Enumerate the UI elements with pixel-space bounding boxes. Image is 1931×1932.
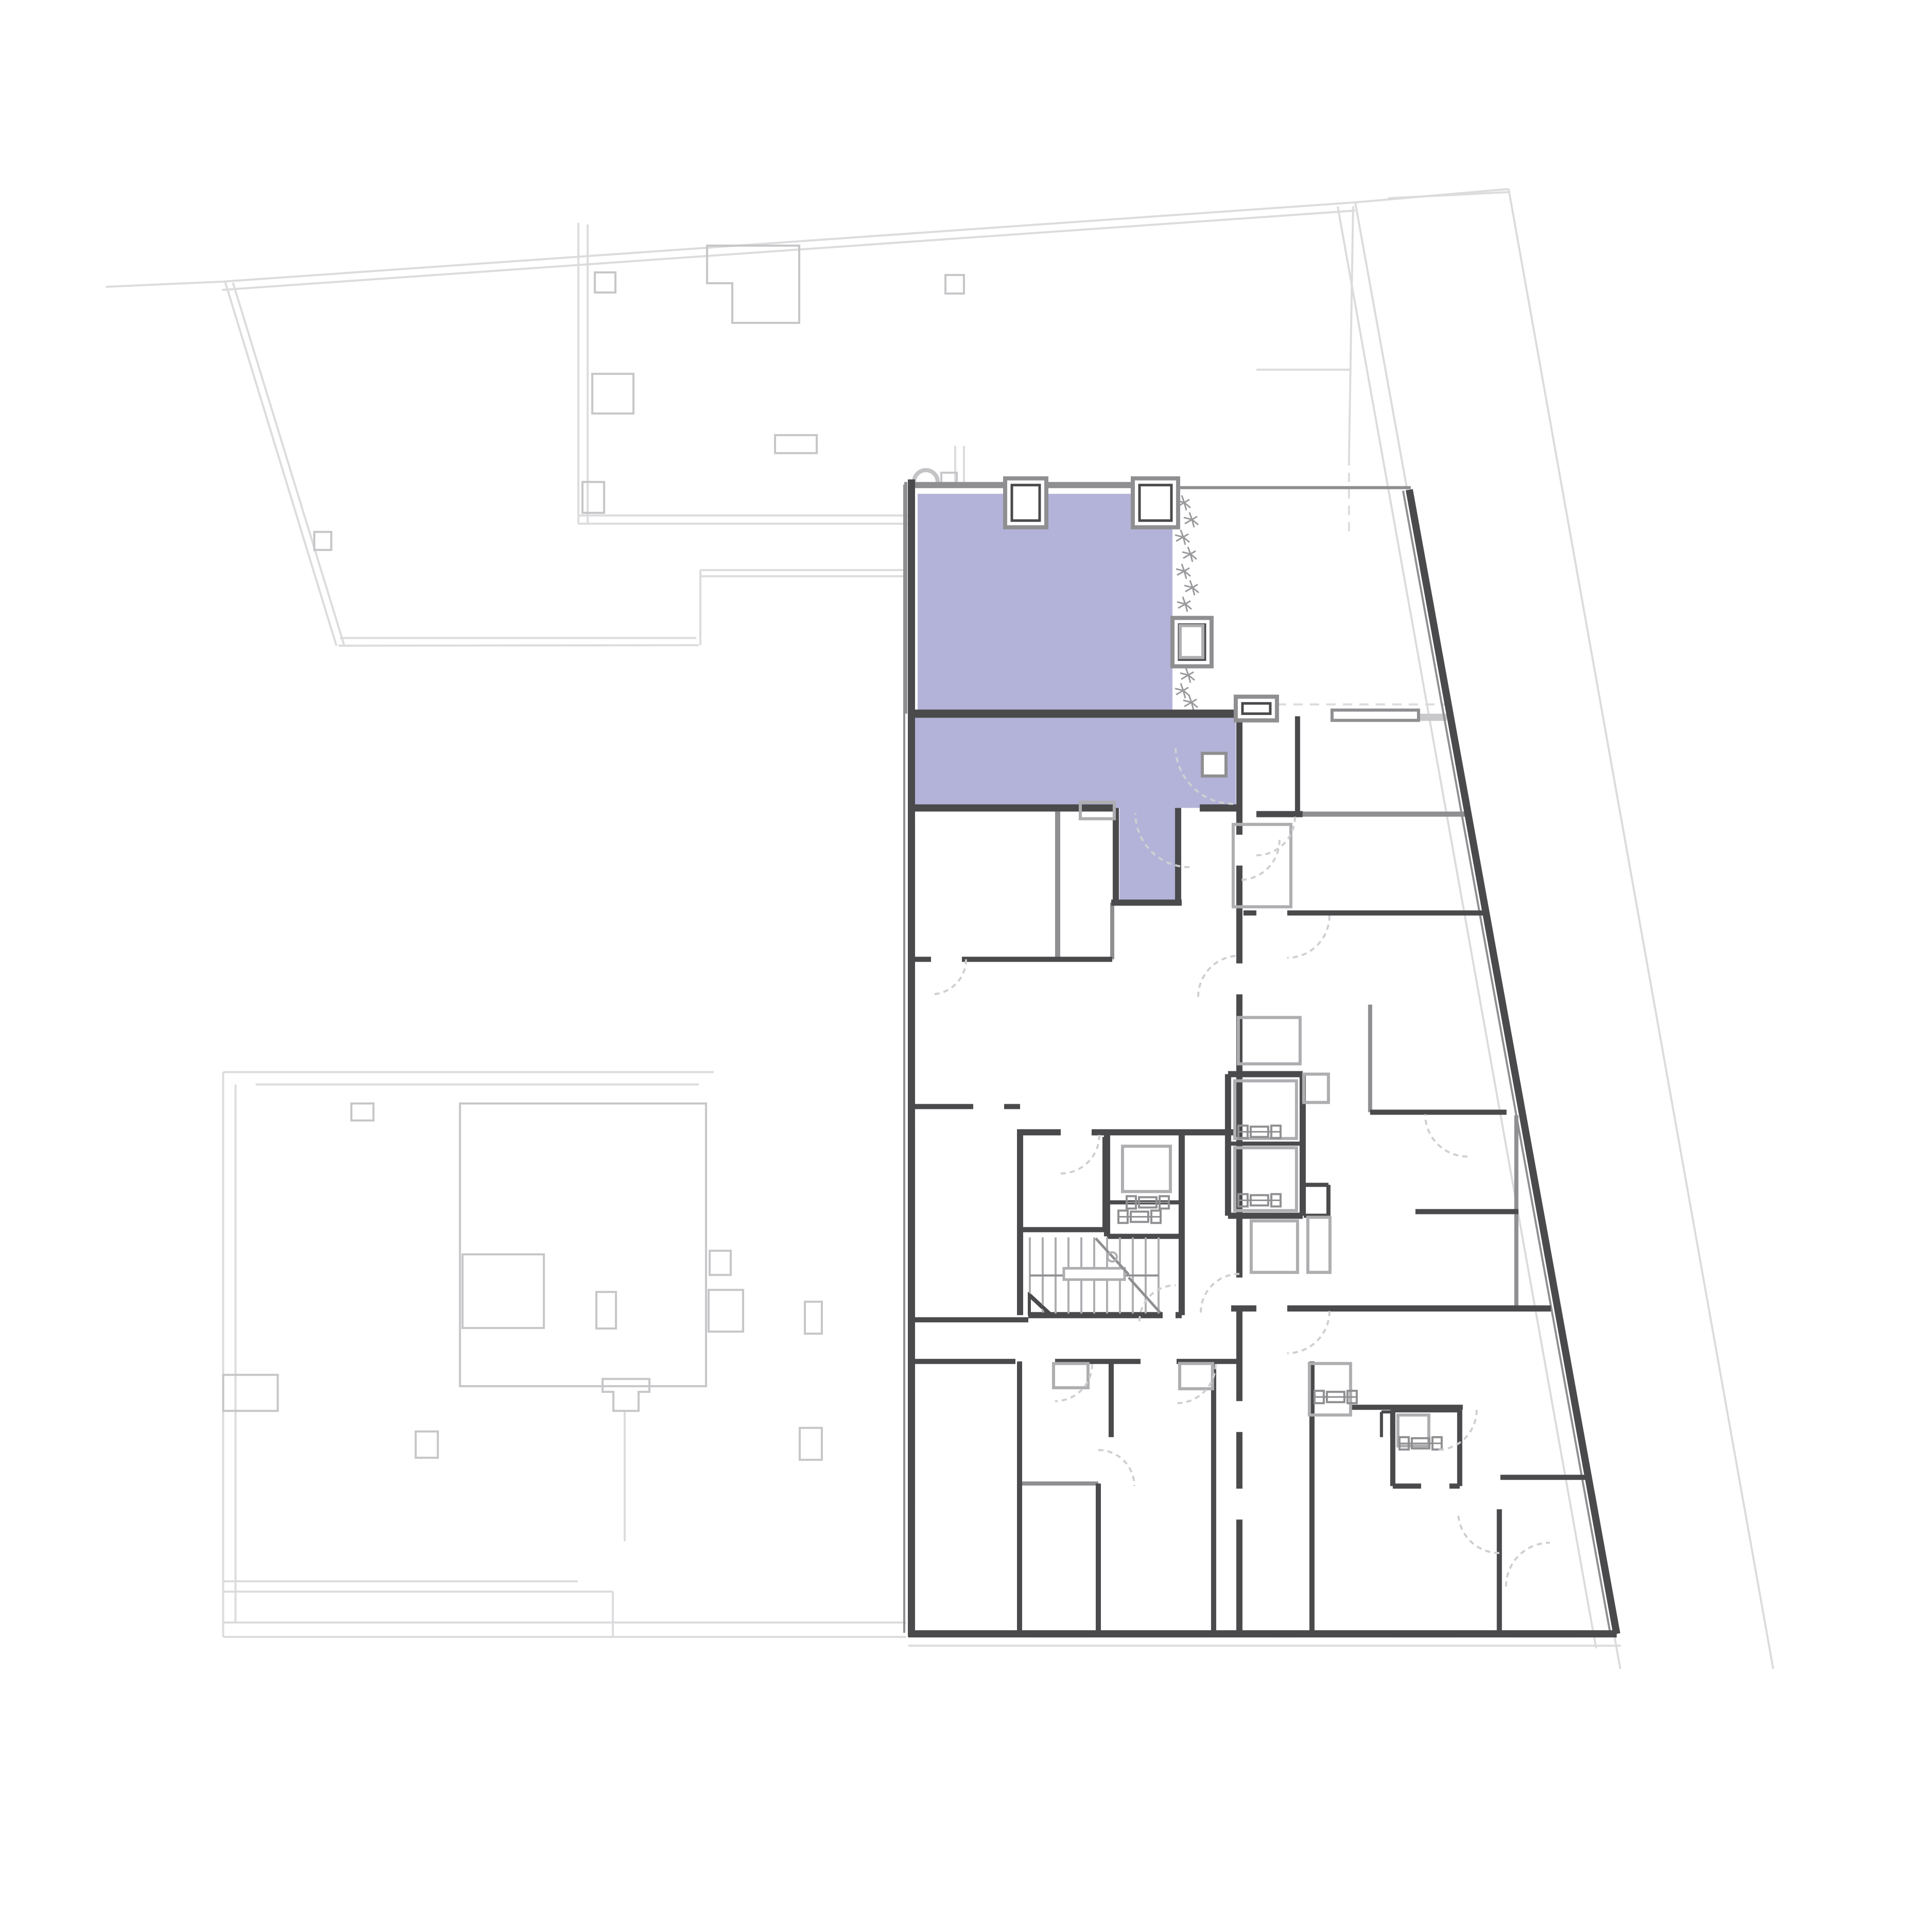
roof-detail-rect	[223, 1375, 278, 1411]
roof-detail-rect	[592, 373, 633, 413]
site-boundary-line	[225, 282, 336, 645]
fixture-outline	[1304, 1074, 1329, 1102]
plant-stroke	[1181, 675, 1188, 679]
stair-rail	[1064, 1268, 1125, 1279]
site-boundary-line	[106, 281, 222, 286]
roof-detail-rect	[805, 1302, 822, 1333]
plant-tuft	[1182, 546, 1197, 561]
plant-stroke	[1185, 601, 1191, 604]
site-boundary-line	[233, 282, 344, 645]
door-swing-arc	[1458, 1512, 1499, 1553]
site-boundary-line	[222, 202, 1355, 281]
partition-wall	[1403, 490, 1611, 1634]
plant-stroke	[1184, 499, 1189, 502]
plant-stroke	[1185, 587, 1193, 591]
door-swing-arc	[1287, 1311, 1330, 1353]
appliance-glyph	[1238, 1125, 1281, 1138]
skylight-inner	[1140, 485, 1171, 520]
skylight-inner	[1012, 485, 1040, 520]
roof-detail-rect	[416, 1431, 438, 1458]
roof-detail-rect	[460, 1103, 706, 1386]
plant-stroke	[1177, 571, 1184, 575]
roof-detail-outline	[602, 1379, 649, 1411]
site-boundary-line	[1509, 189, 1773, 1668]
stair-corner	[1029, 1295, 1050, 1314]
door-swing-arc	[1198, 955, 1239, 997]
appliance-glyph	[1127, 1196, 1169, 1208]
page-background	[0, 0, 1931, 1932]
fixture-outline	[1235, 1148, 1297, 1210]
plant-stroke	[1188, 672, 1194, 675]
door-swing-arc	[1287, 915, 1330, 958]
plant-stroke	[1184, 702, 1192, 706]
plant-stroke	[1183, 534, 1188, 537]
plant-stroke	[1176, 690, 1183, 694]
plant-tuft	[1176, 563, 1191, 578]
appliance-glyph	[1118, 1210, 1161, 1223]
skylight-inner	[1243, 703, 1270, 713]
roof-detail-rect	[462, 1254, 544, 1328]
structural-wall	[1409, 489, 1617, 1633]
door-swing-arc	[1239, 840, 1280, 880]
skylight-outer	[1332, 710, 1419, 720]
neighbor-roof-details	[223, 245, 964, 1459]
roof-detail-rect	[709, 1290, 743, 1331]
roof-detail-rect	[775, 435, 817, 453]
roof-detail-rect	[710, 1251, 731, 1275]
site-boundary-line	[1388, 192, 1509, 198]
skylight-outer	[1202, 753, 1226, 776]
site-boundary-line	[222, 210, 1355, 289]
fixture-outline	[1054, 1363, 1088, 1388]
fixture-outline	[1308, 1217, 1330, 1272]
appliance-glyph	[1400, 1437, 1442, 1449]
door-swing-arc	[931, 959, 966, 994]
plant-stroke	[1184, 568, 1189, 571]
plant-stroke	[1183, 687, 1188, 690]
plant-tuft	[1175, 529, 1189, 544]
floor-plan-container	[0, 1, 1931, 1932]
roof-detail-rect	[800, 1428, 822, 1460]
floor-plan-canvas	[0, 1, 1931, 1932]
roof-detail-rect	[596, 1292, 616, 1328]
fixture-outline	[1123, 1146, 1170, 1191]
stair-core	[1029, 1237, 1160, 1314]
door-swing-arc	[1098, 1450, 1134, 1486]
plant-stroke	[1193, 584, 1198, 587]
roof-detail-rect	[314, 532, 331, 550]
door-swing-arc	[1425, 1114, 1468, 1156]
plant-tuft	[1184, 512, 1198, 527]
site-boundary-line	[338, 645, 699, 645]
door-swing-arc	[1506, 1543, 1550, 1586]
skylight-inner	[1179, 624, 1205, 659]
site-boundary-line	[1349, 206, 1353, 456]
door-swing-arc	[1061, 1135, 1099, 1173]
fixture-outline	[1235, 1081, 1297, 1138]
plant-stroke	[1192, 699, 1197, 702]
site-outlines	[106, 189, 1773, 1668]
highlighted-unit-area	[912, 717, 1236, 808]
plant-stroke	[1192, 516, 1197, 519]
fixture-outline	[1180, 1363, 1213, 1389]
fixture-outline	[1238, 1017, 1300, 1064]
plant-stroke	[1185, 519, 1192, 523]
fixture-outline	[1251, 1221, 1298, 1272]
site-boundary-line	[1338, 206, 1596, 1648]
plant-tuft	[1177, 596, 1192, 611]
highlighted-unit-area	[1119, 803, 1176, 902]
appliance-glyph	[1238, 1194, 1281, 1206]
door-swing-arc	[1256, 816, 1295, 855]
plant-tuft	[1184, 580, 1199, 595]
roof-detail-rect	[945, 275, 964, 293]
canopy-arc	[914, 470, 938, 482]
plant-stroke	[1183, 554, 1191, 558]
roof-detail-rect	[351, 1103, 373, 1120]
fixture-outline	[1398, 1415, 1429, 1446]
plant-stroke	[1176, 537, 1183, 541]
plant-stroke	[1191, 551, 1196, 554]
roof-detail-rect	[582, 482, 604, 512]
roof-detail-rect	[595, 272, 615, 292]
roof-detail-outline	[707, 245, 799, 322]
plant-stroke	[1178, 604, 1185, 608]
plant-tuft	[1175, 683, 1189, 698]
door-swing-arc	[1177, 1364, 1216, 1403]
fixture-outline	[1309, 1363, 1351, 1415]
plant-tuft	[1180, 668, 1195, 682]
